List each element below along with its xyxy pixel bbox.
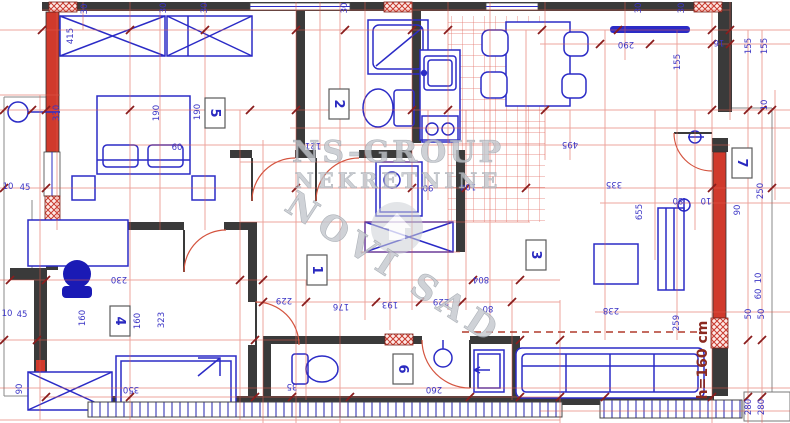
dimension-label: 229 [276,295,292,305]
room-number: 1 [309,265,324,274]
room-number: 3 [528,250,543,259]
dimension-label: 160 [78,310,88,326]
dimension-label: 350 [123,384,139,394]
radiator-bottom [88,402,562,417]
dimension-label: 30 [80,4,90,15]
living-cabinet [594,244,638,284]
room-number: 5 [207,108,222,117]
dining-chair [562,74,586,98]
walls [10,2,732,406]
watermark: NS-GROUP NEKRETNINE NOVI SAD [278,135,510,354]
wall-terrace-lower [712,348,728,396]
room-number: 7 [734,158,749,167]
dimension-label: 90 [15,384,25,395]
dimension-label: 50 [757,309,767,320]
dimension-label: 280 [744,399,754,415]
dimension-label: 30 [159,3,169,14]
dimension-label: 10 [701,195,712,205]
dimension-label: 280 [757,399,767,415]
dimension-label: 230 [111,274,127,284]
living-shelving [658,208,684,290]
dimension-label: 804 [473,274,489,284]
dimension-label: 415 [66,28,76,44]
dimension-label: 45 [20,183,31,193]
wall-bath-left [296,11,305,151]
room-label-6: 6 [393,354,413,384]
red-wall-terrace [713,152,726,318]
dimension-label: 35 [287,381,298,391]
dimension-label: 260 [426,384,442,394]
dimension-label: 495 [562,139,578,149]
dimension-label: 323 [157,312,167,328]
dimension-label: 160 [133,313,143,329]
door-wc6 [422,340,470,388]
wall-hall-room4 [248,222,257,302]
door-terrace [674,133,712,171]
dimension-label: 30 [634,3,644,14]
dimension-label: 90 [733,205,743,216]
dimension-label: 655 [635,204,645,220]
dimension-label: 16 [714,37,725,47]
room-number: 4 [112,316,127,325]
floor-plan: 3030303030304153301901906045101212304510… [0,0,790,423]
room-label-3: 3 [526,240,546,270]
watermark-line2: NEKRETNINE [295,168,502,193]
dimension-label: 30 [200,3,210,14]
toilet-bathroom2 [363,89,414,127]
washbasin-wc6 [434,340,452,367]
watermark-line1: NS-GROUP [292,135,504,170]
dimension-label: 190 [152,105,162,121]
room-label-1: 1 [307,255,327,285]
door-bedroom4 [184,230,226,272]
dimension-label: 290 [618,39,634,49]
dimension-label: 155 [673,54,683,70]
radiator-bottom-right [600,400,742,418]
dimension-label: 30 [340,3,350,14]
floor-plan-canvas: 3030303030304153301901906045101212304510… [0,0,790,423]
wardrobe-bedroom5 [60,16,252,56]
dimension-label: 30 [677,3,687,14]
room-label-7: 7 [732,148,752,178]
room-label-5: 5 [205,98,225,128]
dimension-label: 10 [3,182,14,192]
dimension-label: 190 [193,104,203,120]
dimension-label: 50 [744,309,754,320]
dining-chair [482,30,508,56]
dining-set [481,22,690,106]
dimension-label: 60 [172,143,183,153]
dimension-label: 155 [744,38,754,54]
dimension-label: 335 [606,179,622,189]
dining-table [506,22,570,106]
door-bedroom5 [252,158,295,201]
dimension-label: 238 [603,305,619,315]
room-label-2: 2 [329,89,349,119]
radiators [88,400,742,418]
dimension-label: 10 [2,309,13,319]
dimension-label: 330 [52,105,62,121]
shower-unit-wc [474,350,504,392]
dimension-label: 10 [754,273,764,284]
dimension-label: 60 [754,289,764,300]
room-number: 6 [395,364,410,373]
dimension-label: 155 [760,38,770,54]
furniture [8,16,704,412]
dimension-label: 193 [382,299,398,309]
room-number: 2 [331,99,346,108]
dimension-label: 80 [673,195,684,205]
dining-chair [481,72,507,98]
dimension-label: 10 [760,100,770,111]
toilet-wc6 [292,354,338,384]
dimension-label: 250 [756,183,766,199]
dimension-label: 176 [333,301,349,311]
dimension-label: 45 [17,310,28,320]
hatch-terrace-shaft [711,318,728,348]
sofa [516,348,704,398]
desk-chair [63,260,91,288]
height-note: h=160 cm [695,321,711,400]
dimension-label: 259 [672,315,682,331]
room-label-4: 4 [110,306,130,336]
